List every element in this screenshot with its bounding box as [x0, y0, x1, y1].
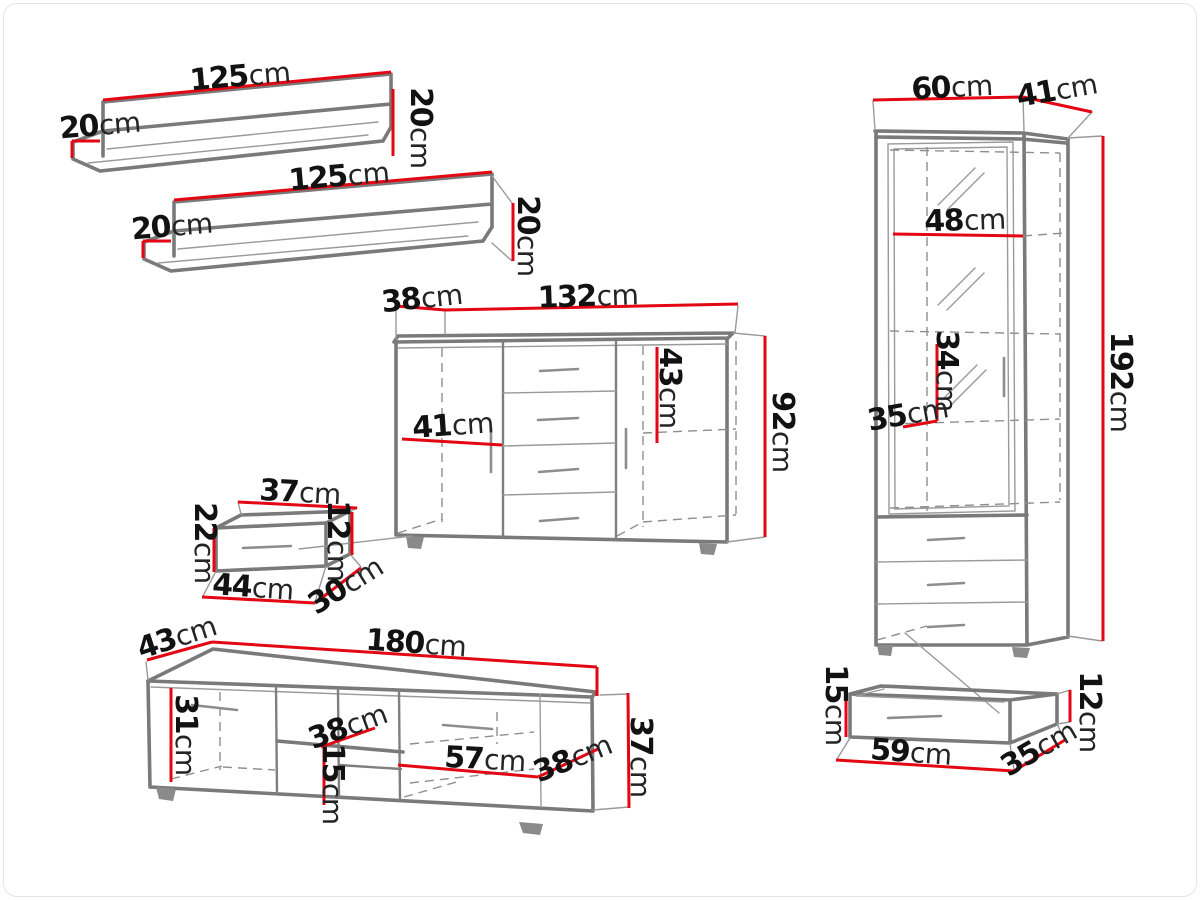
- furniture-dimensions-diagram: 125cm 20cm 20cm 125cm 20cm 20cm 38cm 132…: [0, 0, 1200, 900]
- hanging-shelf-drawing: [202, 502, 412, 603]
- under-drawer-drawing: [836, 686, 1070, 771]
- tv-stand-drawing: [146, 642, 629, 835]
- wall-shelf-1-drawing: [72, 72, 393, 171]
- wall-shelf-2-drawing: [143, 172, 513, 271]
- sideboard-drawing: [394, 304, 765, 555]
- furniture-line-art: [0, 0, 1200, 900]
- display-cabinet-drawing: [873, 97, 1103, 713]
